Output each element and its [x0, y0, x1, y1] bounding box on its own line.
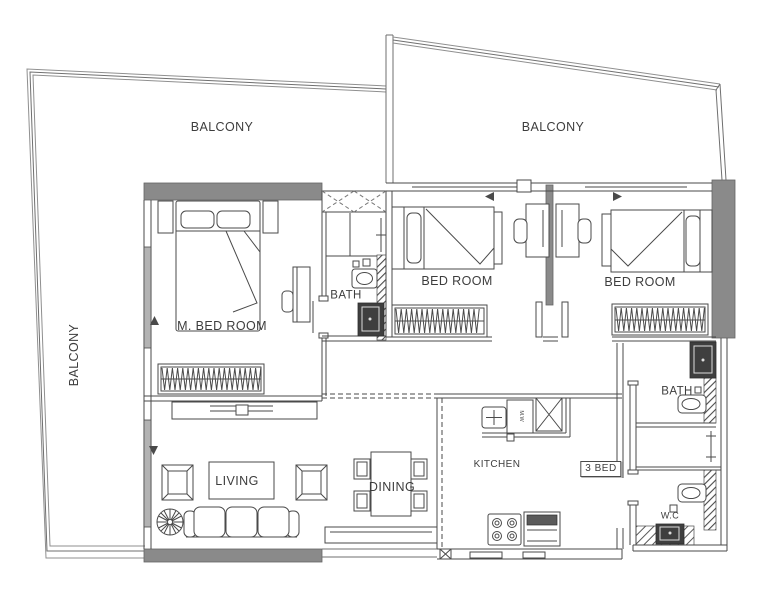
ceiling-fan	[157, 509, 183, 535]
label-bedroom-2: BED ROOM	[421, 275, 492, 288]
label-dining: DINING	[369, 481, 415, 494]
label-bath-2: BATH	[661, 386, 692, 398]
left-wall-windows	[144, 247, 151, 527]
label-balcony-left: BALCONY	[68, 324, 81, 387]
label-bedroom-3: BED ROOM	[604, 276, 675, 289]
bedroom2-wardrobe	[392, 305, 487, 337]
label-wc: W.C	[661, 512, 679, 521]
bedroom3-wardrobe	[612, 304, 708, 335]
floor-plan: BALCONY BALCONY BALCONY M. BED ROOM BATH…	[0, 0, 768, 610]
bedroom3-furniture	[556, 204, 712, 272]
entry-closet	[322, 191, 386, 212]
bath-master-fixtures	[326, 213, 386, 336]
balcony-right-parapet	[386, 35, 726, 183]
bedroom-door-leaves	[536, 302, 568, 337]
master-wardrobe	[158, 364, 264, 394]
bedroom2-furniture	[392, 204, 549, 269]
label-balcony-top-left: BALCONY	[191, 121, 254, 134]
label-master-bedroom: M. BED ROOM	[177, 320, 267, 333]
floor-plan-drawing	[0, 0, 768, 610]
label-microwave: M.W	[517, 410, 523, 421]
label-balcony-top-right: BALCONY	[522, 121, 585, 134]
label-bath-master: BATH	[330, 290, 361, 302]
label-kitchen: KITCHEN	[474, 460, 521, 470]
living-furniture	[162, 402, 327, 537]
label-living: LIVING	[215, 475, 258, 488]
unit-type-badge: 3 BED	[580, 461, 621, 477]
dining-furniture	[325, 452, 437, 543]
master-bedroom-furniture	[158, 201, 310, 331]
kitchen-fixtures	[482, 398, 570, 546]
